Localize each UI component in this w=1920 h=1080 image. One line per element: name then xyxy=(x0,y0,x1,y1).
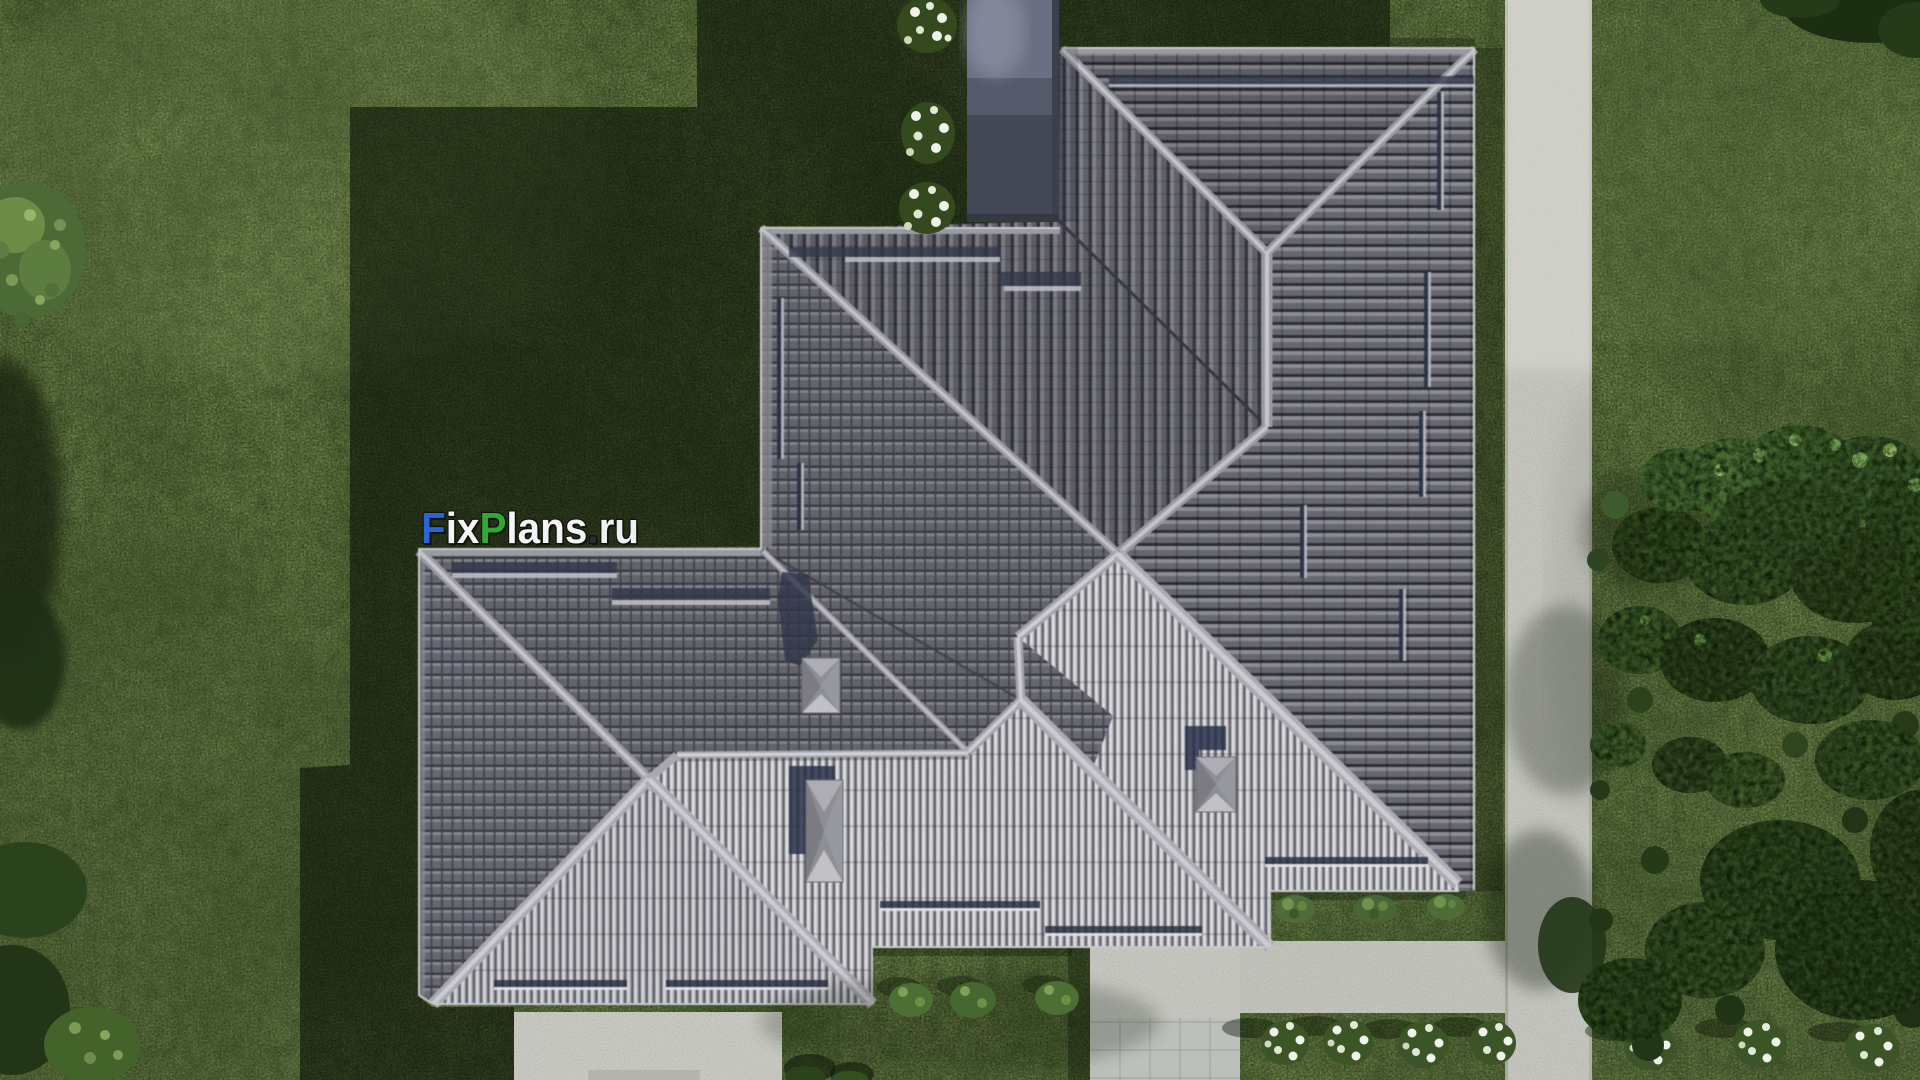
svg-text:FixPlans.ru: FixPlans.ru xyxy=(421,504,639,553)
